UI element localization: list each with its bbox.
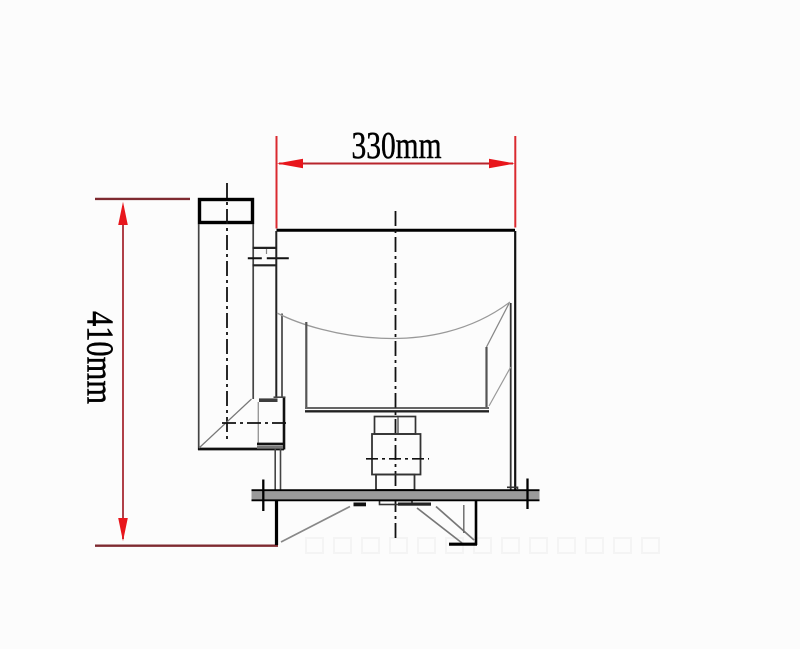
svg-text:410mm: 410mm xyxy=(79,311,121,404)
svg-text:330mm: 330mm xyxy=(352,125,442,167)
